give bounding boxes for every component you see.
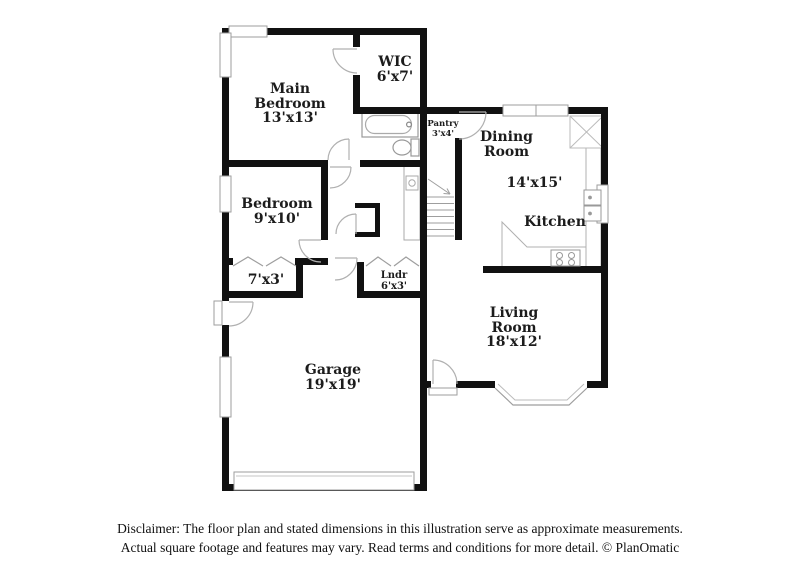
threshold-front-door [429, 388, 457, 395]
room-label-pantry: Pantry3'x4' [422, 120, 464, 139]
garage-side-door [229, 302, 253, 326]
room-label-closet-7x3: 7'x3' [236, 273, 296, 288]
disclaimer-line-1: Disclaimer: The floor plan and stated di… [0, 519, 800, 538]
stove-icon [551, 250, 580, 266]
window-garage-left [220, 357, 231, 417]
window-bedroom-top [229, 26, 267, 37]
closet-bifold [233, 257, 263, 266]
floor-plan-page: Main Bedroom13'x13' WIC6'x7' Pantry3'x4'… [0, 0, 800, 582]
stair-direction-arrow [428, 179, 450, 194]
room-label-laundry: Lndr6'x3' [370, 270, 418, 292]
staircase [427, 179, 454, 236]
main-bedroom-door [328, 139, 349, 160]
toilet-icon [393, 139, 419, 156]
linen-closet-door [336, 214, 356, 234]
refrigerator-box [570, 116, 603, 148]
room-label-main-bedroom: Main Bedroom13'x13' [250, 82, 330, 126]
bathroom-door [330, 167, 351, 188]
closet-bifold [266, 257, 296, 266]
mudroom-door [335, 258, 357, 280]
laundry-bifold [394, 257, 419, 266]
bay-window [495, 381, 587, 405]
window-bedroom-left [220, 33, 231, 77]
room-label-garage: Garage19'x19' [293, 363, 373, 392]
garage-door [234, 472, 414, 490]
window-bedroom2-left [220, 176, 231, 212]
room-label-kitchen: Kitchen [523, 215, 587, 230]
threshold-garage-side-door [214, 301, 222, 325]
wic-door [333, 49, 357, 73]
room-label-dining-room: Dining Room [464, 130, 549, 159]
disclaimer-line-2: Actual square footage and features may v… [0, 538, 800, 557]
room-label-living-room: Living Room18'x12' [474, 306, 554, 350]
bathtub-icon [362, 112, 418, 137]
room-label-wic: WIC6'x7' [365, 55, 425, 84]
disclaimer-text: Disclaimer: The floor plan and stated di… [0, 519, 800, 557]
laundry-bifold [366, 257, 391, 266]
vanity-sink-icon [404, 164, 420, 240]
room-label-bedroom: Bedroom9'x10' [237, 197, 317, 226]
room-dims-dining-room: 14'x15' [497, 176, 572, 191]
